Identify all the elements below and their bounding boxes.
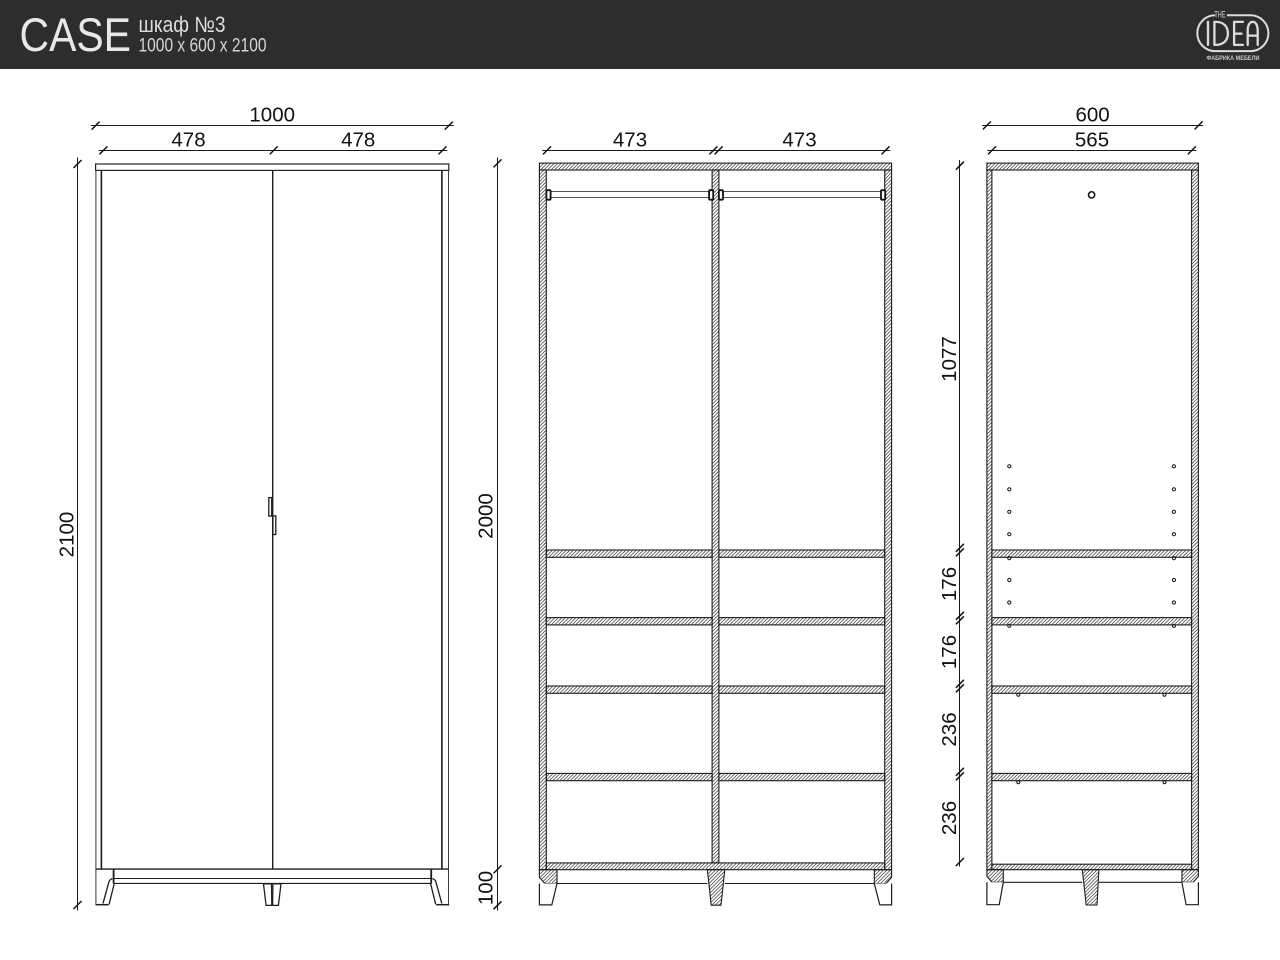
svg-text:478: 478 <box>171 129 205 152</box>
svg-text:565: 565 <box>1075 129 1109 152</box>
svg-text:1000: 1000 <box>249 104 295 127</box>
svg-text:1000 x 600 x 2100: 1000 x 600 x 2100 <box>139 34 267 56</box>
svg-text:176: 176 <box>938 635 961 669</box>
svg-text:236: 236 <box>938 801 961 835</box>
svg-text:473: 473 <box>782 129 816 152</box>
svg-text:CASE: CASE <box>20 9 132 62</box>
svg-text:473: 473 <box>613 129 647 152</box>
svg-text:ФАБРИКА МЕБЕЛИ: ФАБРИКА МЕБЕЛИ <box>1207 56 1260 62</box>
svg-text:1077: 1077 <box>938 336 961 382</box>
svg-text:478: 478 <box>341 129 375 152</box>
svg-text:2000: 2000 <box>475 493 498 539</box>
svg-text:236: 236 <box>938 712 961 746</box>
svg-text:2100: 2100 <box>56 512 79 558</box>
svg-text:176: 176 <box>938 567 961 601</box>
svg-text:600: 600 <box>1075 104 1109 127</box>
svg-text:шкаф №3: шкаф №3 <box>139 12 226 37</box>
svg-text:THE: THE <box>1214 9 1225 19</box>
svg-text:100: 100 <box>475 871 498 905</box>
